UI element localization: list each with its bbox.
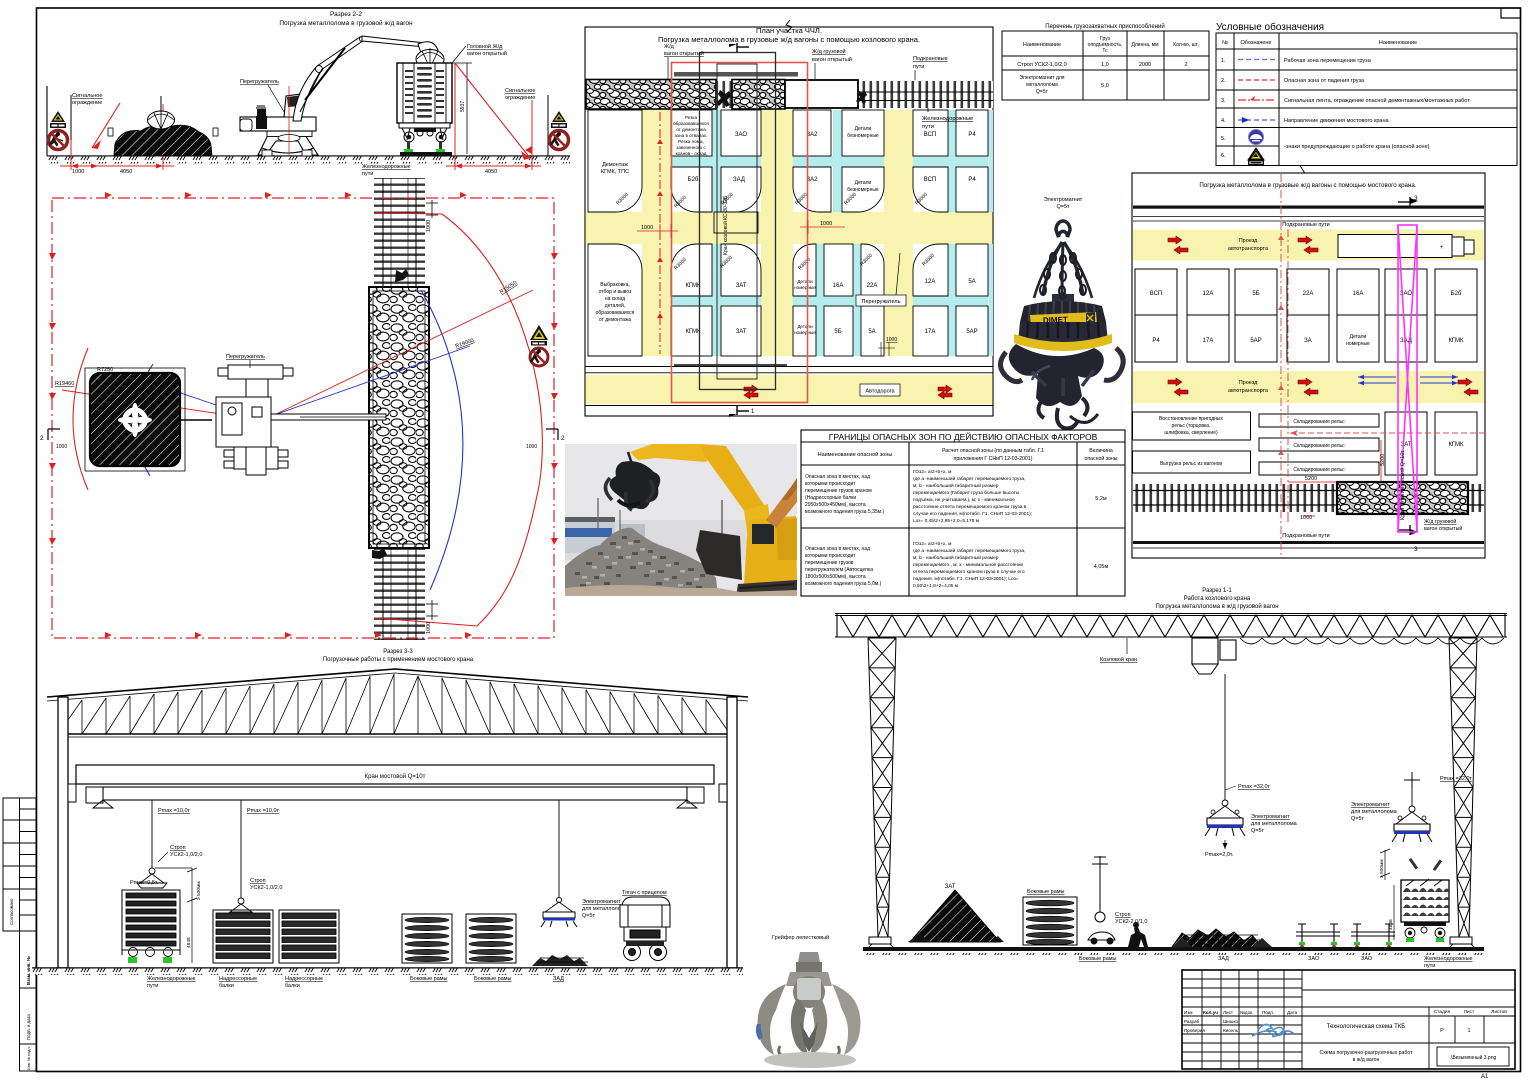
svg-text:Опасная зона от падения груза: Опасная зона от падения груза [1284, 78, 1365, 84]
svg-text:номерные: номерные [794, 330, 816, 335]
svg-text:Проезд: Проезд [1239, 380, 1258, 386]
svg-text:УСК2-2,0/1,0: УСК2-2,0/1,0 [1115, 919, 1147, 925]
svg-text:Pmax =10,0т: Pmax =10,0т [247, 808, 280, 814]
svg-text:Электромагнит для: Электромагнит для [1019, 75, 1064, 81]
svg-text:2000: 2000 [1139, 62, 1151, 68]
svg-text:КГМК: КГМК [1448, 442, 1464, 448]
svg-text:Детали: Детали [797, 324, 813, 329]
svg-text:Инв. № подл.: Инв. № подл. [27, 1046, 31, 1070]
svg-text:вагон открытый: вагон открытый [467, 50, 507, 57]
svg-text:Изм: Изм [1184, 1010, 1193, 1015]
svg-text:м; b - наибольший габаритный р: м; b - наибольший габаритный размер [913, 482, 999, 489]
svg-text:Перегружатель: Перегружатель [226, 354, 265, 360]
svg-text:приложения Г СНиП 12-03-2001): приложения Г СНиП 12-03-2001) [954, 456, 1033, 462]
svg-text:Разрез 3-3: Разрез 3-3 [383, 649, 413, 655]
svg-text:Кол-во, шт.: Кол-во, шт. [1173, 42, 1198, 48]
svg-text:Погрузочные работы с применени: Погрузочные работы с применением мостово… [323, 657, 474, 663]
svg-text:от демонтажа: от демонтажа [599, 317, 631, 323]
svg-text:ЗАТ: ЗАТ [736, 283, 747, 289]
svg-text:Погрузка металлолома в грузовы: Погрузка металлолома в грузовые ж/д ваго… [658, 35, 920, 44]
svg-text:Проверил: Проверил [1184, 1028, 1205, 1033]
svg-text:балки: балки [285, 983, 300, 989]
svg-text:Боковые рамы: Боковые рамы [474, 976, 512, 982]
svg-text:1000: 1000 [72, 169, 84, 175]
svg-text:Детали: Детали [1350, 334, 1367, 340]
svg-text:1000: 1000 [56, 444, 67, 450]
svg-text:А1: А1 [1481, 1074, 1489, 1080]
svg-text:Pmax=2,0т.: Pmax=2,0т. [1205, 852, 1234, 858]
svg-text:на склад: на склад [605, 296, 625, 302]
svg-text:перемещаемого , м; х - минимал: перемещаемого , м; х - минимальное расст… [913, 563, 1024, 568]
svg-text:Схема погрузочно-разгрузочных: Схема погрузочно-разгрузочных работ [1319, 1050, 1413, 1056]
svg-text:балки: балки [219, 983, 234, 989]
svg-text:перемещение грузов: перемещение грузов [805, 560, 854, 566]
svg-text:от демонтажа: от демонтажа [676, 127, 706, 132]
svg-text:пути: пути [147, 983, 158, 989]
svg-text:Условные обозначения: Условные обозначения [1216, 21, 1324, 33]
svg-text:Разрез 2-2: Разрез 2-2 [330, 11, 362, 18]
svg-text:(Надрессорные балки: (Надрессорные балки [805, 495, 856, 501]
svg-text:12А: 12А [1203, 291, 1214, 297]
svg-text:ВСП: ВСП [1150, 291, 1162, 297]
svg-text:опасной зоны: опасной зоны [1084, 455, 1117, 462]
svg-text:≥ 500мм: ≥ 500мм [196, 881, 202, 900]
svg-text:2: 2 [1184, 62, 1187, 68]
svg-text:5Б: 5Б [1252, 291, 1259, 297]
svg-text:падения, м(потабл. Г1, СНиП 12: падения, м(потабл. Г1, СНиП 12-03-2001);… [913, 576, 1019, 582]
svg-text:1800х500х500мм), высота: 1800х500х500мм), высота [805, 574, 866, 580]
svg-text:Обозначене: Обозначене [1241, 40, 1272, 46]
svg-text:Автодорога: Автодорога [865, 389, 895, 395]
svg-text:для металлолома: для металлолома [1351, 809, 1398, 815]
svg-text:1000: 1000 [886, 337, 897, 343]
svg-text:ЗАТ: ЗАТ [945, 884, 956, 890]
svg-text:Наименование опасной зоны: Наименование опасной зоны [818, 451, 893, 458]
svg-text:отлета перемещаемого краном гр: отлета перемещаемого краном груза в случ… [913, 570, 1025, 575]
svg-text:Складирование рельс: Складирование рельс [1293, 419, 1345, 425]
svg-text:Б2б: Б2б [1451, 291, 1462, 297]
svg-text:Лист: Лист [1464, 1009, 1475, 1015]
svg-text:перемещение грузов краном: перемещение грузов краном [805, 488, 872, 494]
svg-text:ЗАД: ЗАД [553, 976, 564, 982]
svg-text:Направление движения мостового: Направление движения мостового крана [1284, 118, 1390, 124]
svg-text:ВСП: ВСП [924, 177, 936, 183]
svg-text:Рабочая зона перемещение груза: Рабочая зона перемещение груза [1284, 58, 1372, 64]
svg-text:которыми происходит: которыми происходит [805, 481, 856, 487]
svg-text:≥ 500мм: ≥ 500мм [1379, 859, 1385, 878]
svg-text:17А: 17А [1203, 338, 1214, 344]
svg-text:Кран мостовой Q=10т: Кран мостовой Q=10т [365, 773, 426, 780]
svg-text:Кран Электрический Q=10т: Кран Электрический Q=10т [1399, 450, 1406, 520]
svg-text:ЗАО: ЗАО [1361, 956, 1373, 962]
svg-text:17А: 17А [925, 329, 936, 335]
svg-text:Сигнальное: Сигнальное [505, 88, 535, 94]
svg-text:образовавшихся: образовавшихся [596, 310, 635, 316]
svg-text:5Б: 5Б [834, 329, 841, 335]
svg-text:4050: 4050 [485, 169, 497, 175]
svg-text:номерные: номерные [1346, 341, 1370, 347]
svg-text:Железнодорожные: Железнодорожные [147, 976, 196, 982]
svg-text:16А: 16А [833, 283, 844, 289]
svg-text:№: № [1222, 40, 1228, 46]
svg-text:отбор и вывоз: отбор и вывоз [599, 289, 633, 295]
svg-text:Железнодорожные: Железнодорожные [1424, 956, 1473, 962]
svg-text:Ж/д грузовой: Ж/д грузовой [812, 48, 846, 55]
svg-text:Ж/д грузовой: Ж/д грузовой [1424, 518, 1456, 525]
svg-text:в ж/д вагон: в ж/д вагон [1353, 1057, 1380, 1063]
svg-text:5А: 5А [968, 279, 975, 285]
svg-text:вагон открытый: вагон открытый [664, 50, 704, 57]
svg-text:Разраб: Разраб [1184, 1019, 1200, 1024]
svg-text:1000: 1000 [641, 225, 653, 231]
svg-text:ГОз2= а\2+b+х, м: ГОз2= а\2+b+х, м [913, 469, 951, 475]
svg-text:Электромагнит: Электромагнит [582, 899, 621, 905]
svg-text:Подп.: Подп. [1262, 1010, 1274, 1015]
svg-text:Q=5т: Q=5т [1056, 204, 1070, 210]
svg-text:Выгрузка рельс из вагонов: Выгрузка рельс из вагонов [1160, 461, 1222, 467]
svg-text:Погрузка металлолома в ж/д гру: Погрузка металлолома в ж/д грузовой ваго… [1155, 603, 1278, 610]
svg-text:Листов: Листов [1491, 1009, 1507, 1015]
svg-text:Работа козлового крана: Работа козлового крана [1184, 596, 1251, 602]
svg-text:2: 2 [40, 435, 44, 442]
svg-text:вагон открытый: вагон открытый [1424, 525, 1462, 532]
svg-text:номерные: номерные [794, 285, 816, 290]
svg-text:подъема, не учитываем.), м; х: подъема, не учитываем.), м; х - минималь… [913, 497, 1015, 503]
svg-text:ЗА: ЗА [1304, 338, 1312, 344]
svg-text:5,2м: 5,2м [1095, 496, 1107, 502]
svg-text:Длинна, мм: Длинна, мм [1131, 42, 1159, 48]
svg-text:Согласовано: Согласовано [9, 898, 14, 925]
svg-text:возможного падения груза 5,35м: возможного падения груза 5,35м.) [805, 509, 884, 515]
svg-text:ГОз2= а\2+b+х, м: ГОз2= а\2+b+х, м [913, 541, 951, 547]
svg-text:Кисель: Кисель [1223, 1028, 1239, 1033]
svg-text:Р4: Р4 [968, 177, 976, 183]
svg-text:Выбраковка,: Выбраковка, [600, 282, 630, 288]
svg-text:Подп. и дата: Подп. и дата [26, 1014, 31, 1040]
svg-text:рельс (торцовка,: рельс (торцовка, [1172, 423, 1211, 429]
svg-text:ограждение: ограждение [72, 100, 102, 106]
svg-text:Грейфер лепестковый: Грейфер лепестковый [772, 934, 829, 941]
svg-text:Строп: Строп [170, 845, 186, 851]
svg-text:кранов - склад: кранов - склад [675, 151, 706, 156]
svg-text:Строп: Строп [250, 878, 266, 884]
svg-text:Детали: Детали [855, 126, 872, 132]
svg-text:Б2б: Б2б [688, 177, 699, 183]
svg-text:УСК2-1,0/2,0: УСК2-1,0/2,0 [170, 852, 202, 858]
svg-text:22А: 22А [867, 283, 878, 289]
svg-text:Электромагнит: Электромагнит [1044, 197, 1083, 203]
svg-text:Р4: Р4 [968, 132, 976, 138]
svg-text:5АР: 5АР [966, 329, 977, 335]
svg-text:1000: 1000 [526, 444, 537, 450]
svg-text:м; b - наибольший габаритный р: м; b - наибольший габаритный размер [913, 554, 999, 561]
svg-text:5АР: 5АР [1250, 338, 1261, 344]
svg-text:4,05м: 4,05м [1094, 564, 1109, 570]
svg-text:пути: пути [1424, 963, 1435, 969]
svg-text:Кран козловой КС-30-32Б: Кран козловой КС-30-32Б [722, 195, 729, 255]
svg-text:Железнодорожные: Железнодорожные [922, 116, 973, 122]
svg-text:Восстановление пригодных: Восстановление пригодных [1159, 416, 1224, 422]
svg-text:Р: Р [1440, 1028, 1444, 1034]
svg-text:2.: 2. [1221, 78, 1226, 84]
svg-text:Наименование: Наименование [1023, 42, 1061, 48]
svg-text:Перегружатель: Перегружатель [240, 79, 279, 85]
svg-text:Q=5т: Q=5т [582, 913, 596, 919]
svg-text:R19460: R19460 [55, 381, 74, 387]
svg-text:Ж/д: Ж/д [664, 44, 675, 50]
svg-text:1000: 1000 [426, 622, 432, 634]
svg-text:КГМК: КГМК [1448, 338, 1464, 344]
svg-text:Расчет опасной зоны (по данным: Расчет опасной зоны (по данным табл. Г.1 [942, 447, 1044, 454]
svg-text:Взам. инв. №: Взам. инв. № [26, 956, 31, 985]
svg-text:Надрессорные: Надрессорные [219, 976, 257, 982]
svg-text:ЗАД: ЗАД [1218, 956, 1229, 962]
svg-text:Проезд: Проезд [1239, 238, 1258, 244]
svg-text:Опасная зона в местах, над: Опасная зона в местах, над [805, 546, 870, 552]
svg-text:завезенного с: завезенного с [676, 145, 706, 150]
svg-text:Величина: Величина [1089, 448, 1113, 454]
svg-text:Строп УСК2-1,0/2,0: Строп УСК2-1,0/2,0 [1017, 62, 1067, 68]
svg-text:Боковые рамы: Боковые рамы [1027, 889, 1065, 895]
svg-text:случае его падения, м(потабл.: случае его падения, м(потабл. Г1, СНиП 1… [913, 511, 1032, 517]
svg-text:Кол.уч: Кол.уч [1203, 1010, 1218, 1015]
svg-text:вагон открытый: вагон открытый [812, 56, 852, 63]
svg-text:Lоз= 0,45\2+2,95+2,0=5,175 м: Lоз= 0,45\2+2,95+2,0=5,175 м [913, 518, 979, 524]
svg-text:Q=5т: Q=5т [1251, 828, 1265, 834]
svg-text:ЗАТ: ЗАТ [736, 329, 747, 335]
svg-text:16А: 16А [1353, 291, 1364, 297]
svg-text:Погрузка металлолома в грузово: Погрузка металлолома в грузовой ж/д ваго… [279, 19, 413, 27]
svg-text:Подкрановые пути: Подкрановые пути [1282, 222, 1330, 228]
svg-text:Детали: Детали [797, 279, 813, 284]
svg-text:1000: 1000 [820, 221, 832, 227]
svg-text:КГМК: КГМК [685, 329, 701, 335]
svg-text:УСК2-1,0/2,0: УСК2-1,0/2,0 [250, 885, 282, 891]
svg-text:Погрузка металлолома в грузовы: Погрузка металлолома в грузовые ж/д ваго… [1199, 182, 1416, 189]
svg-text:деталей,: деталей, [605, 302, 625, 309]
svg-text:Q=5т: Q=5т [1351, 816, 1365, 822]
svg-text:Тс: Тс [1102, 48, 1108, 54]
svg-text:ВСП: ВСП [924, 132, 936, 138]
svg-text:12А: 12А [925, 279, 936, 285]
svg-text:Боковые рамы: Боковые рамы [410, 976, 448, 982]
svg-text:Q=5т: Q=5т [1036, 89, 1049, 95]
svg-text:4050: 4050 [120, 169, 132, 175]
svg-text:Pmax =32,0т: Pmax =32,0т [1440, 776, 1473, 782]
svg-text:возможного падения груза 5,0м.: возможного падения груза 5,0м.) [805, 581, 882, 587]
svg-text:Лист: Лист [1223, 1010, 1234, 1015]
svg-text:Складирование рельс: Складирование рельс [1293, 443, 1345, 449]
svg-text:1000: 1000 [426, 220, 432, 232]
svg-text:ГРАНИЦЫ ОПАСНЫХ ЗОН ПО ДЕЙСТВИ: ГРАНИЦЫ ОПАСНЫХ ЗОН ПО ДЕЙСТВИЮ ОПАСНЫХ … [829, 431, 1098, 442]
svg-text:где а -наименьший габарит пере: где а -наименьший габарит перемещаемого … [913, 475, 1026, 482]
svg-text:№док.: №док. [1240, 1010, 1253, 1015]
svg-text:ограждение: ограждение [505, 95, 535, 101]
svg-text:22А: 22А [1303, 291, 1314, 297]
svg-text:Pmax =32,0т: Pmax =32,0т [1238, 784, 1271, 790]
svg-text:6.: 6. [1221, 153, 1226, 159]
svg-text:пути: пути [922, 124, 934, 130]
svg-text:расстояние отлета перемещаемог: расстояние отлета перемещаемого краном г… [913, 505, 1027, 510]
svg-text:5А: 5А [868, 329, 875, 335]
svg-text:КГМК: КГМК [685, 283, 701, 289]
svg-text:ЗАО: ЗАО [1308, 956, 1320, 962]
svg-text:Технологическая схема ТКБ: Технологическая схема ТКБ [1327, 1024, 1406, 1030]
svg-text:3: 3 [1414, 546, 1418, 553]
svg-text:Дата: Дата [1287, 1010, 1298, 1015]
svg-text:Шишко: Шишко [1223, 1019, 1239, 1024]
svg-text:1,0: 1,0 [1101, 62, 1109, 68]
svg-text:Сигнальная лента, ограждение о: Сигнальная лента, ограждение опасной дем… [1284, 97, 1470, 104]
svg-text:для металлолома: для металлолома [1251, 821, 1298, 827]
svg-text:КГМК, ТПС: КГМК, ТПС [601, 169, 629, 175]
svg-text:металлолома: металлолома [1026, 82, 1058, 88]
svg-text:Резка: Резка [685, 115, 698, 120]
svg-text:5200: 5200 [1305, 476, 1317, 482]
svg-text:1: 1 [1467, 1028, 1470, 1034]
svg-text:4.: 4. [1221, 118, 1226, 124]
svg-text:перемещаемого (Габарит груза б: перемещаемого (Габарит груза больше высо… [913, 490, 1020, 496]
svg-text:Сигнальное: Сигнальное [72, 93, 102, 99]
svg-text:зона в отвалах.: зона в отвалах. [674, 133, 707, 138]
svg-text:3.: 3. [1221, 98, 1226, 104]
svg-text:Складирование рельс: Складирование рельс [1293, 467, 1345, 473]
svg-text:+: + [1440, 245, 1444, 251]
svg-text:5.: 5. [1221, 136, 1226, 142]
svg-text:перегружателем (Автосцепка: перегружателем (Автосцепка [805, 567, 873, 573]
svg-text:автотранспорта: автотранспорта [1228, 388, 1269, 394]
svg-text:1.: 1. [1221, 58, 1226, 64]
svg-text:Опасная зона в местах, над: Опасная зона в местах, над [805, 474, 870, 480]
svg-text:5,0: 5,0 [1101, 83, 1109, 89]
svg-text:Подкрановые пути: Подкрановые пути [1282, 533, 1330, 539]
svg-text:Наименование: Наименование [1379, 40, 1417, 46]
svg-text:которыми происходит: которыми происходит [805, 553, 856, 559]
svg-text:Надрессорные: Надрессорные [285, 976, 323, 982]
svg-text:Pmax =10,0т: Pmax =10,0т [158, 808, 191, 814]
svg-text:.\Безымянный 3.png: .\Безымянный 3.png [1450, 1054, 1497, 1061]
svg-text:Стадия: Стадия [1434, 1009, 1451, 1015]
svg-text:Железнодорожные: Железнодорожные [362, 164, 411, 170]
svg-text:Боковые рамы: Боковые рамы [1079, 956, 1117, 962]
svg-text:Разрез 1-1: Разрез 1-1 [1202, 588, 1232, 594]
svg-text:Электромагнит: Электромагнит [1351, 802, 1390, 808]
svg-text:Р4: Р4 [1152, 338, 1160, 344]
svg-text:Детали: Детали [855, 180, 872, 186]
svg-text:Головной Ж/д: Головной Ж/д [467, 43, 503, 50]
svg-text:ЗАО: ЗАО [735, 132, 747, 138]
svg-text:5937: 5937 [460, 101, 466, 112]
svg-text:Перегружатель: Перегружатель [862, 299, 901, 305]
svg-text:3: 3 [1414, 195, 1418, 202]
svg-text:Козловой кран: Козловой кран [1100, 656, 1137, 663]
svg-text:Тягач с прицепом: Тягач с прицепом [622, 890, 667, 896]
svg-text:автотранспорта: автотранспорта [1228, 246, 1269, 252]
svg-text:где а -наименьший габарит пере: где а -наименьший габарит перемещаемого … [913, 547, 1026, 554]
svg-text:Электромагнит: Электромагнит [1251, 814, 1290, 820]
svg-text:Перечень грузозахватных приспо: Перечень грузозахватных приспособлений [1045, 23, 1165, 30]
svg-text:2950х500х450мм), высота: 2950х500х450мм), высота [805, 502, 866, 508]
svg-text:2: 2 [561, 435, 565, 442]
svg-text:Демонтаж: Демонтаж [602, 162, 628, 168]
svg-text:шлифовка, сверление): шлифовка, сверление) [1164, 430, 1218, 436]
svg-text:-знаки предупреждающие о работ: -знаки предупреждающие о работе крана (о… [1284, 143, 1430, 150]
svg-text:ЗАД: ЗАД [733, 177, 745, 183]
svg-text:Строп: Строп [1115, 912, 1131, 918]
svg-text:пути: пути [362, 171, 373, 177]
svg-text:пути: пути [913, 64, 924, 70]
svg-text:Pmax=0,5т.: Pmax=0,5т. [130, 880, 159, 886]
svg-text:4848: 4848 [186, 937, 192, 948]
svg-text:0,50\2+1,8+2=4,05 м: 0,50\2+1,8+2=4,05 м [913, 583, 958, 589]
svg-text:безномерные: безномерные [847, 133, 879, 139]
svg-text:Подкрановые: Подкрановые [913, 56, 948, 62]
svg-text:образовавшихся: образовавшихся [673, 121, 709, 126]
svg-text:ЗАТ: ЗАТ [1401, 442, 1412, 448]
